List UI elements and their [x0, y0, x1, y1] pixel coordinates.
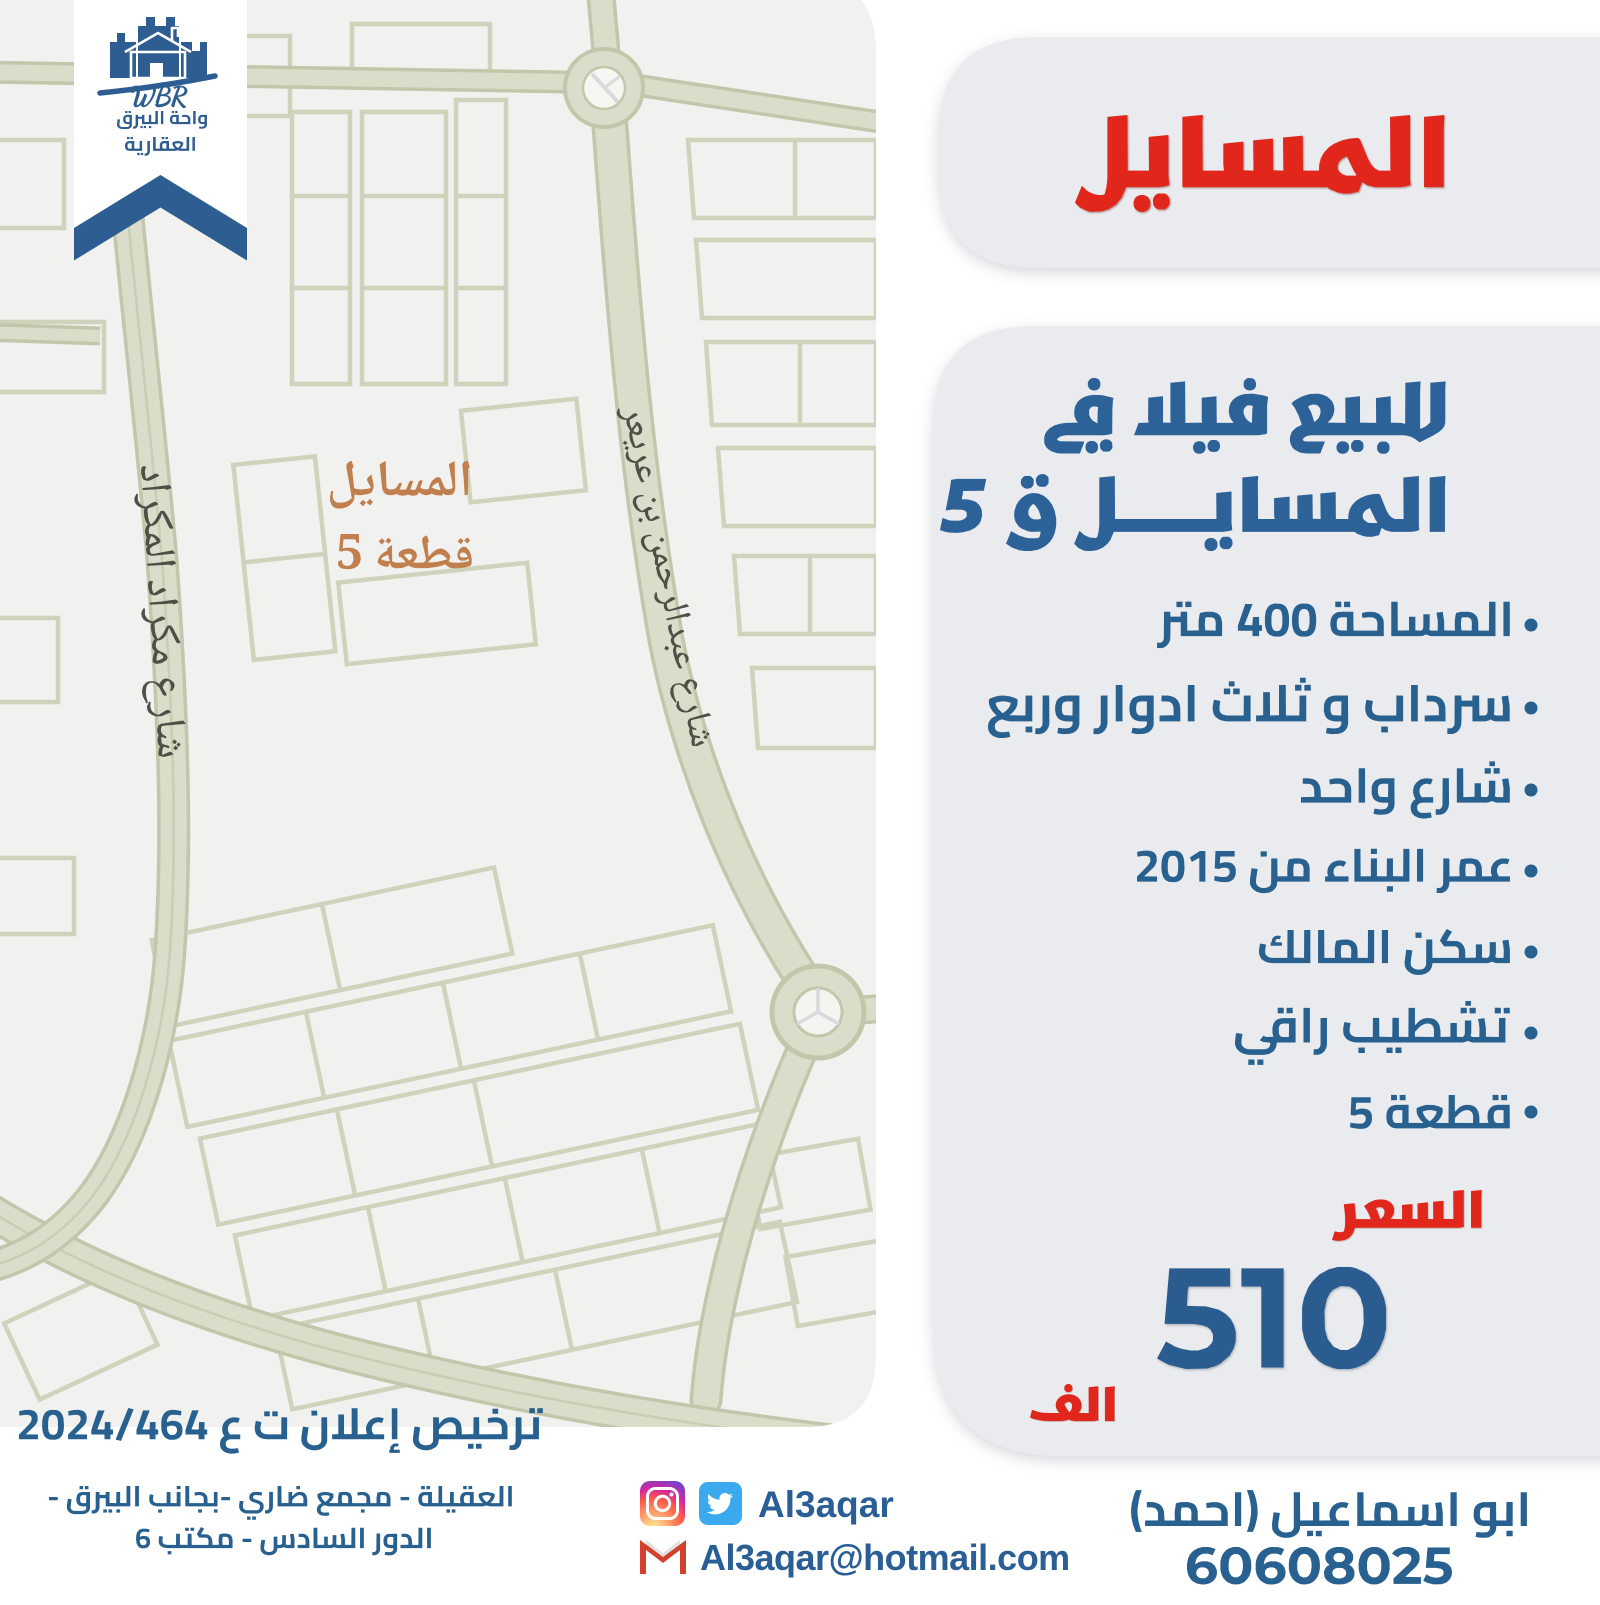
- svg-text:Al3aqar: Al3aqar: [758, 1484, 894, 1525]
- svg-text:Al3aqar@hotmail.com: Al3aqar@hotmail.com: [700, 1537, 1070, 1578]
